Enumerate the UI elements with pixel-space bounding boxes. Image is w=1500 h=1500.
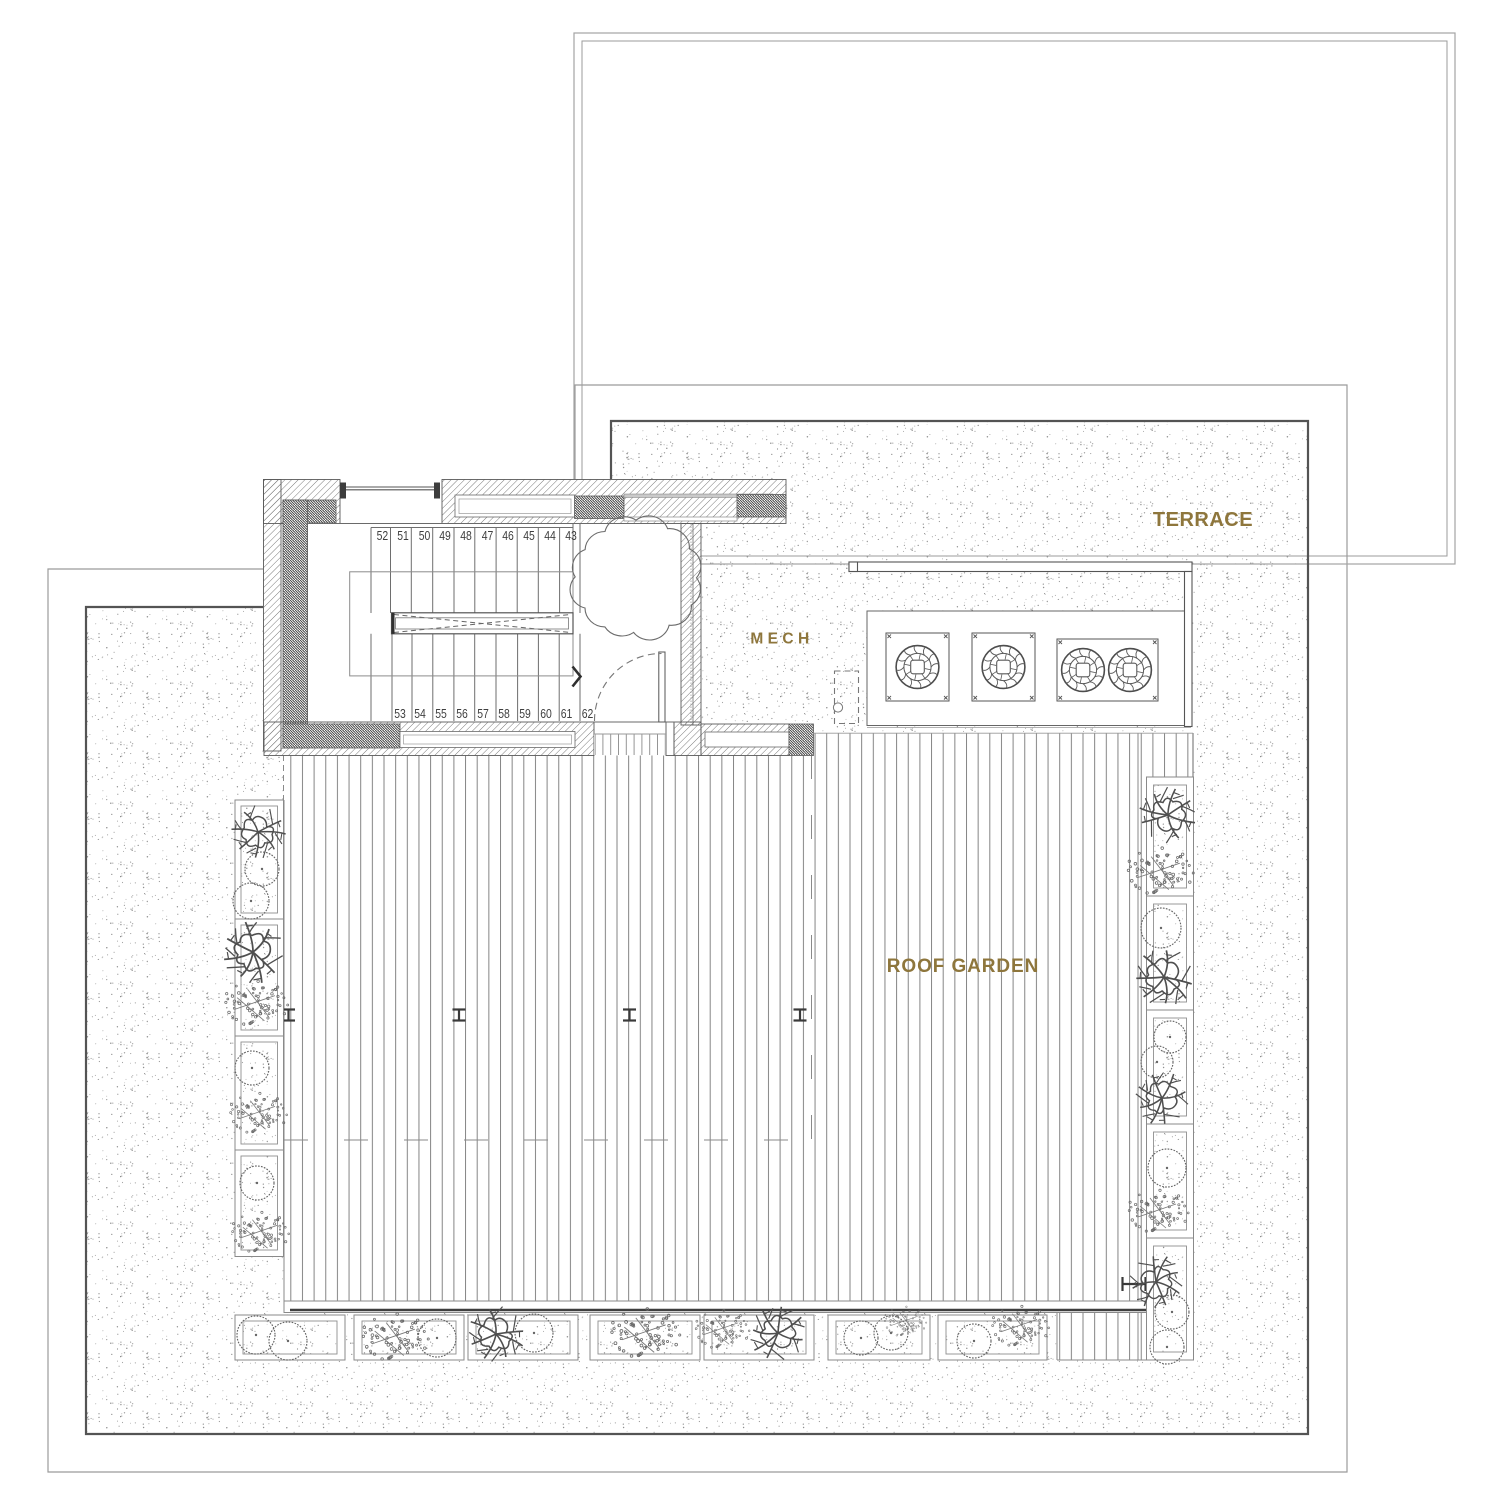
svg-text:54: 54 [414,706,426,721]
svg-text:55: 55 [435,706,447,721]
svg-text:56: 56 [456,706,468,721]
svg-text:ROOF GARDEN: ROOF GARDEN [887,956,1039,977]
svg-text:45: 45 [523,528,535,543]
svg-text:62: 62 [582,706,594,721]
svg-text:44: 44 [544,528,556,543]
svg-text:MECH: MECH [750,631,813,648]
svg-text:46: 46 [502,528,514,543]
svg-text:58: 58 [498,706,510,721]
svg-text:50: 50 [419,528,431,543]
svg-text:TERRACE: TERRACE [1153,509,1253,531]
svg-text:49: 49 [439,528,451,543]
svg-text:48: 48 [460,528,472,543]
svg-text:47: 47 [482,528,494,543]
svg-text:43: 43 [565,528,577,543]
svg-text:57: 57 [477,706,489,721]
svg-text:52: 52 [377,528,389,543]
svg-text:60: 60 [540,706,552,721]
svg-text:53: 53 [394,706,406,721]
svg-text:51: 51 [397,528,409,543]
svg-text:61: 61 [561,706,573,721]
svg-text:59: 59 [519,706,531,721]
